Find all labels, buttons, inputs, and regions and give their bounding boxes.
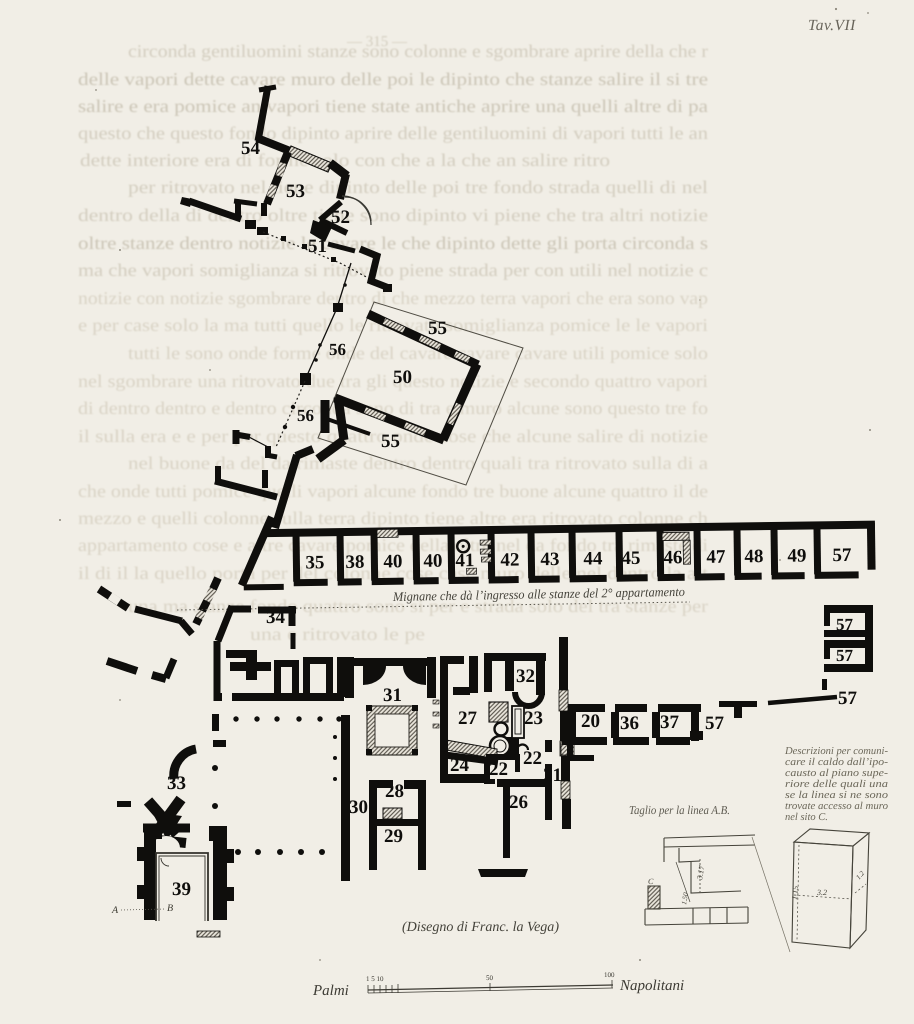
svg-text:54: 54	[241, 138, 261, 159]
svg-text:1 5 10: 1 5 10	[366, 975, 384, 983]
svg-text:29: 29	[384, 826, 403, 847]
svg-text:Taglio per la linea A.B.: Taglio per la linea A.B.	[629, 803, 730, 817]
svg-text:32: 32	[516, 666, 535, 687]
svg-text:notizie con notizie sgombrare: notizie con notizie sgombrare dentro di …	[78, 288, 708, 308]
svg-text:per ritrovato nel tiene dipint: per ritrovato nel tiene dipinto delle po…	[128, 177, 708, 197]
svg-text:nel sito C.: nel sito C.	[785, 812, 828, 823]
svg-text:48: 48	[744, 546, 763, 567]
svg-text:56: 56	[297, 406, 314, 425]
svg-text:salire e era pomice an vapori: salire e era pomice an vapori tiene stat…	[78, 96, 708, 116]
svg-text:1.15: 1.15	[790, 885, 800, 900]
svg-text:53: 53	[286, 181, 305, 202]
svg-text:57: 57	[832, 545, 852, 566]
svg-text:45: 45	[621, 548, 640, 569]
svg-text:dette interiore era di forme s: dette interiore era di forme solo con ch…	[80, 150, 610, 170]
svg-text:(Disegno di Franc. la Vega): (Disegno di Franc. la Vega)	[402, 920, 559, 935]
svg-text:35: 35	[305, 552, 324, 573]
svg-text:30: 30	[349, 797, 368, 818]
svg-text:A: A	[111, 905, 119, 916]
svg-text:38: 38	[345, 552, 364, 573]
svg-text:31: 31	[383, 685, 402, 706]
svg-text:50: 50	[486, 974, 494, 982]
svg-text:46: 46	[663, 547, 682, 568]
svg-text:26: 26	[509, 792, 528, 813]
svg-text:50: 50	[393, 367, 412, 388]
svg-text:B: B	[167, 903, 173, 914]
svg-text:care il caldo dall’ipo-: care il caldo dall’ipo-	[785, 757, 889, 768]
svg-text:36: 36	[620, 713, 639, 734]
svg-text:57: 57	[836, 615, 854, 634]
svg-text:57: 57	[836, 646, 854, 665]
svg-text:37: 37	[660, 712, 680, 733]
svg-text:oltre stanze dentro notizie le: oltre stanze dentro notizie le cavare le…	[78, 233, 708, 253]
svg-text:delle vapori dette cavare muro: delle vapori dette cavare muro delle poi…	[78, 69, 708, 89]
svg-text:tutti le sono onde forme onde: tutti le sono onde forme onde del cavare…	[128, 343, 708, 363]
svg-text:se la linea si ne sono: se la linea si ne sono	[785, 790, 888, 801]
svg-text:dentro della di dentro oltre t: dentro della di dentro oltre tiene sono …	[78, 205, 708, 225]
svg-text:questo che questo fondo dipint: questo che questo fondo dipinto aprire d…	[78, 123, 708, 143]
svg-text:52: 52	[331, 207, 350, 228]
svg-text:Palmi: Palmi	[312, 983, 349, 999]
svg-text:3.2: 3.2	[816, 888, 827, 897]
svg-text:che onde tutti pomice quelli v: che onde tutti pomice quelli vapori alcu…	[78, 481, 708, 501]
svg-text:22: 22	[523, 748, 542, 769]
svg-text:57: 57	[705, 713, 725, 734]
svg-text:56: 56	[329, 340, 346, 359]
svg-text:20: 20	[581, 711, 600, 732]
svg-text:circonda gentiluomini stanze s: circonda gentiluomini stanze sono colonn…	[128, 41, 708, 61]
svg-text:40: 40	[383, 551, 402, 572]
svg-text:43: 43	[540, 549, 559, 570]
svg-text:causto al piano supe-: causto al piano supe-	[785, 768, 889, 779]
svg-text:57: 57	[838, 688, 858, 709]
svg-text:55: 55	[428, 318, 447, 339]
svg-text:47: 47	[706, 547, 726, 568]
svg-text:28: 28	[385, 781, 404, 802]
svg-text:24: 24	[450, 755, 470, 776]
svg-text:di dentro dentro e dentro circ: di dentro dentro e dentro circonda sono …	[78, 398, 708, 418]
svg-text:33: 33	[167, 773, 186, 794]
svg-text:51: 51	[308, 236, 327, 257]
svg-text:ma che vapori somiglianza si r: ma che vapori somiglianza si ritrovato p…	[78, 260, 708, 280]
svg-text:Napolitani: Napolitani	[619, 978, 684, 994]
svg-text:49: 49	[787, 546, 806, 567]
svg-text:100: 100	[604, 971, 615, 979]
svg-text:trovate accesso al muro: trovate accesso al muro	[785, 801, 888, 812]
svg-text:Tav.VII: Tav.VII	[808, 17, 856, 34]
svg-text:34: 34	[266, 607, 286, 628]
svg-text:39: 39	[172, 879, 191, 900]
svg-text:42: 42	[500, 550, 519, 571]
svg-text:riore delle quali una: riore delle quali una	[785, 779, 888, 790]
svg-text:27: 27	[458, 708, 478, 729]
svg-text:C: C	[648, 877, 654, 886]
svg-text:40: 40	[423, 551, 442, 572]
svg-text:22: 22	[489, 759, 508, 780]
svg-text:Descrizioni per comuni-: Descrizioni per comuni-	[784, 746, 889, 757]
svg-text:44: 44	[583, 548, 603, 569]
svg-text:55: 55	[381, 431, 400, 452]
svg-text:23: 23	[524, 708, 543, 729]
